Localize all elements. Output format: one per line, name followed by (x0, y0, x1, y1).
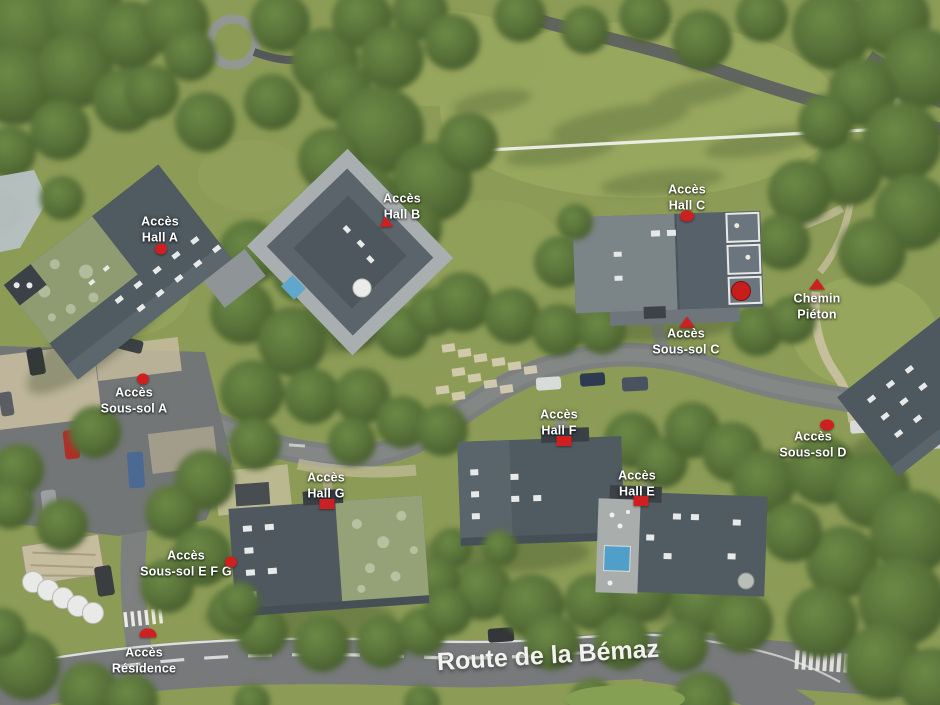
building-c (572, 211, 764, 327)
acces-sous-sol-a-marker (137, 374, 149, 385)
chemin-pieton-marker (809, 279, 825, 290)
acces-hall-a-marker (155, 244, 167, 255)
acces-hall-e-marker (634, 496, 649, 506)
pool-building-e (604, 546, 631, 572)
acces-sous-sol-efg-marker (225, 557, 237, 568)
acces-hall-g-marker (320, 499, 335, 509)
round-terrace (738, 573, 754, 589)
site-aerial-rendering (0, 0, 940, 705)
acces-sous-sol-d-marker (820, 420, 834, 431)
acces-sous-sol-c-marker (679, 317, 695, 328)
acces-hall-f-marker (557, 436, 572, 446)
acces-hall-c-marker (680, 211, 694, 222)
red-dot-marker (732, 282, 751, 301)
acces-residence-marker (140, 629, 157, 638)
aerial-site-plan: Accès Hall A Accès Hall B Accès Hall C C… (0, 0, 940, 705)
roof-dome (353, 279, 371, 297)
